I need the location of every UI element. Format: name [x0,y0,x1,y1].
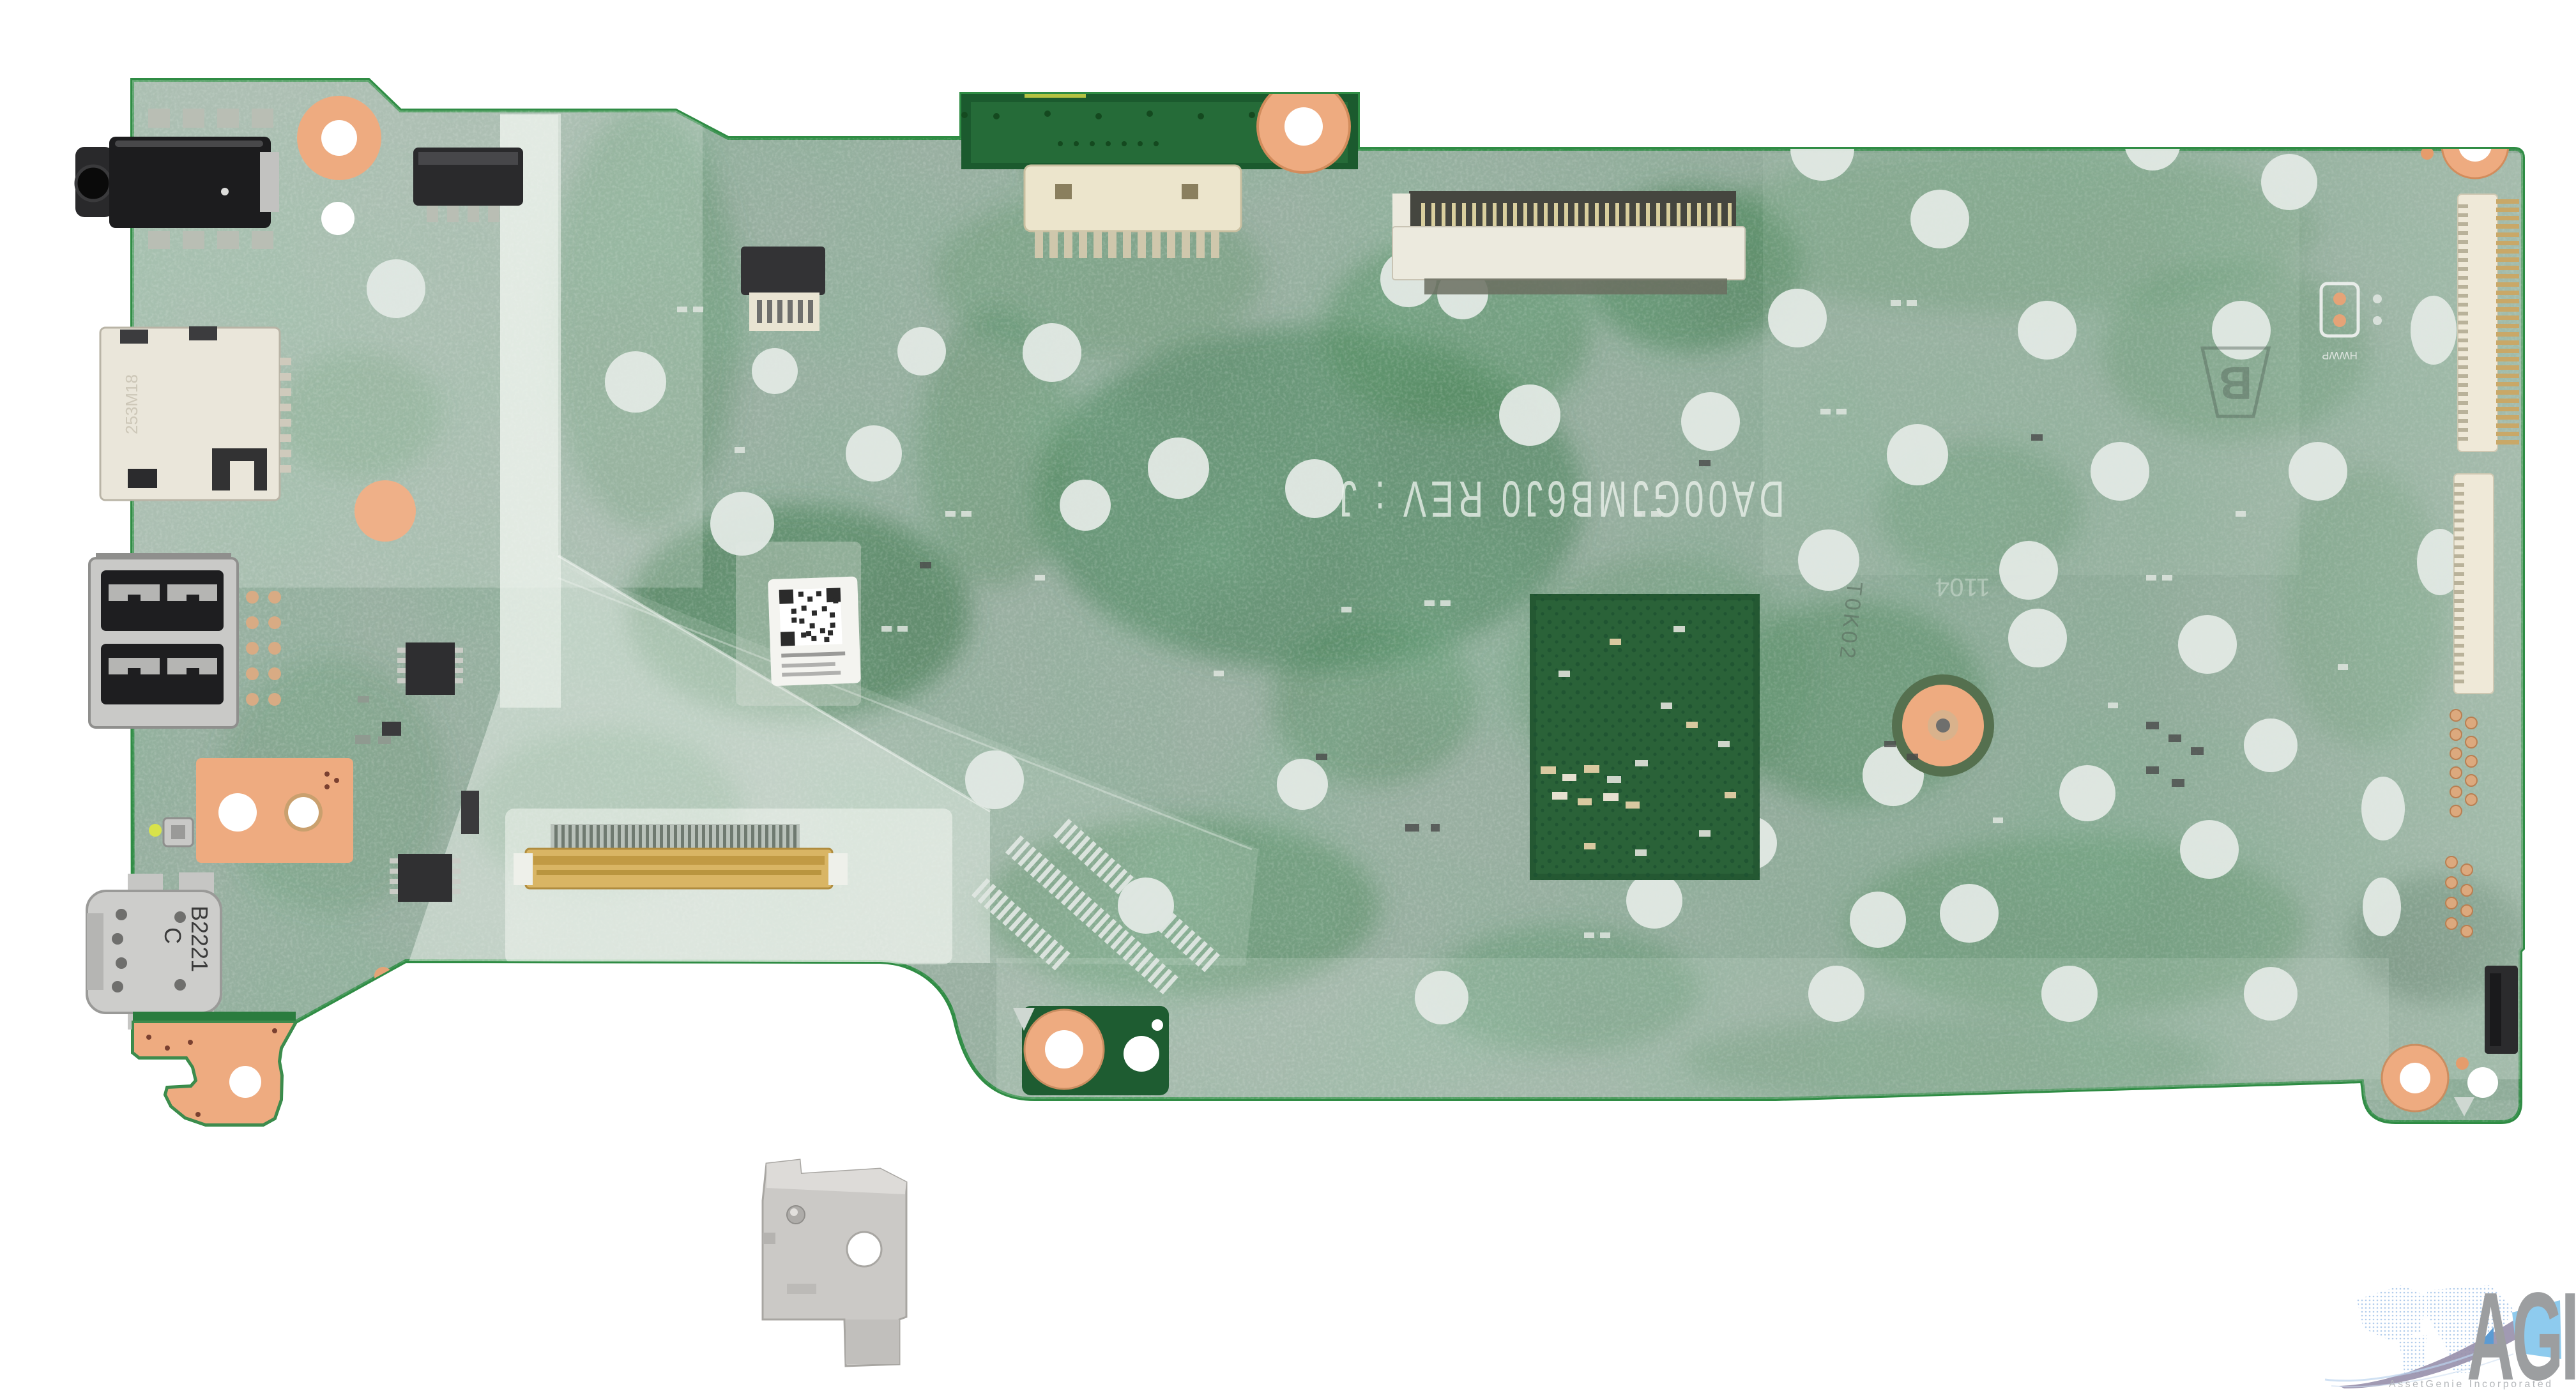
svg-text:253M18: 253M18 [122,374,141,434]
svg-text:1104: 1104 [1935,573,1990,601]
svg-text:AGI: AGI [2467,1267,2576,1391]
svg-text:B: B [2219,357,2252,408]
svg-text:AssetGenie Incorporated: AssetGenie Incorporated [2389,1379,2554,1390]
svg-text:HWWP: HWWP [2322,349,2358,361]
svg-text:DA00GJMB6J0 REV : J: DA00GJMB6J0 REV : J [1335,470,1784,527]
svg-text:C: C [160,927,186,944]
svg-text:B2221: B2221 [187,906,213,972]
